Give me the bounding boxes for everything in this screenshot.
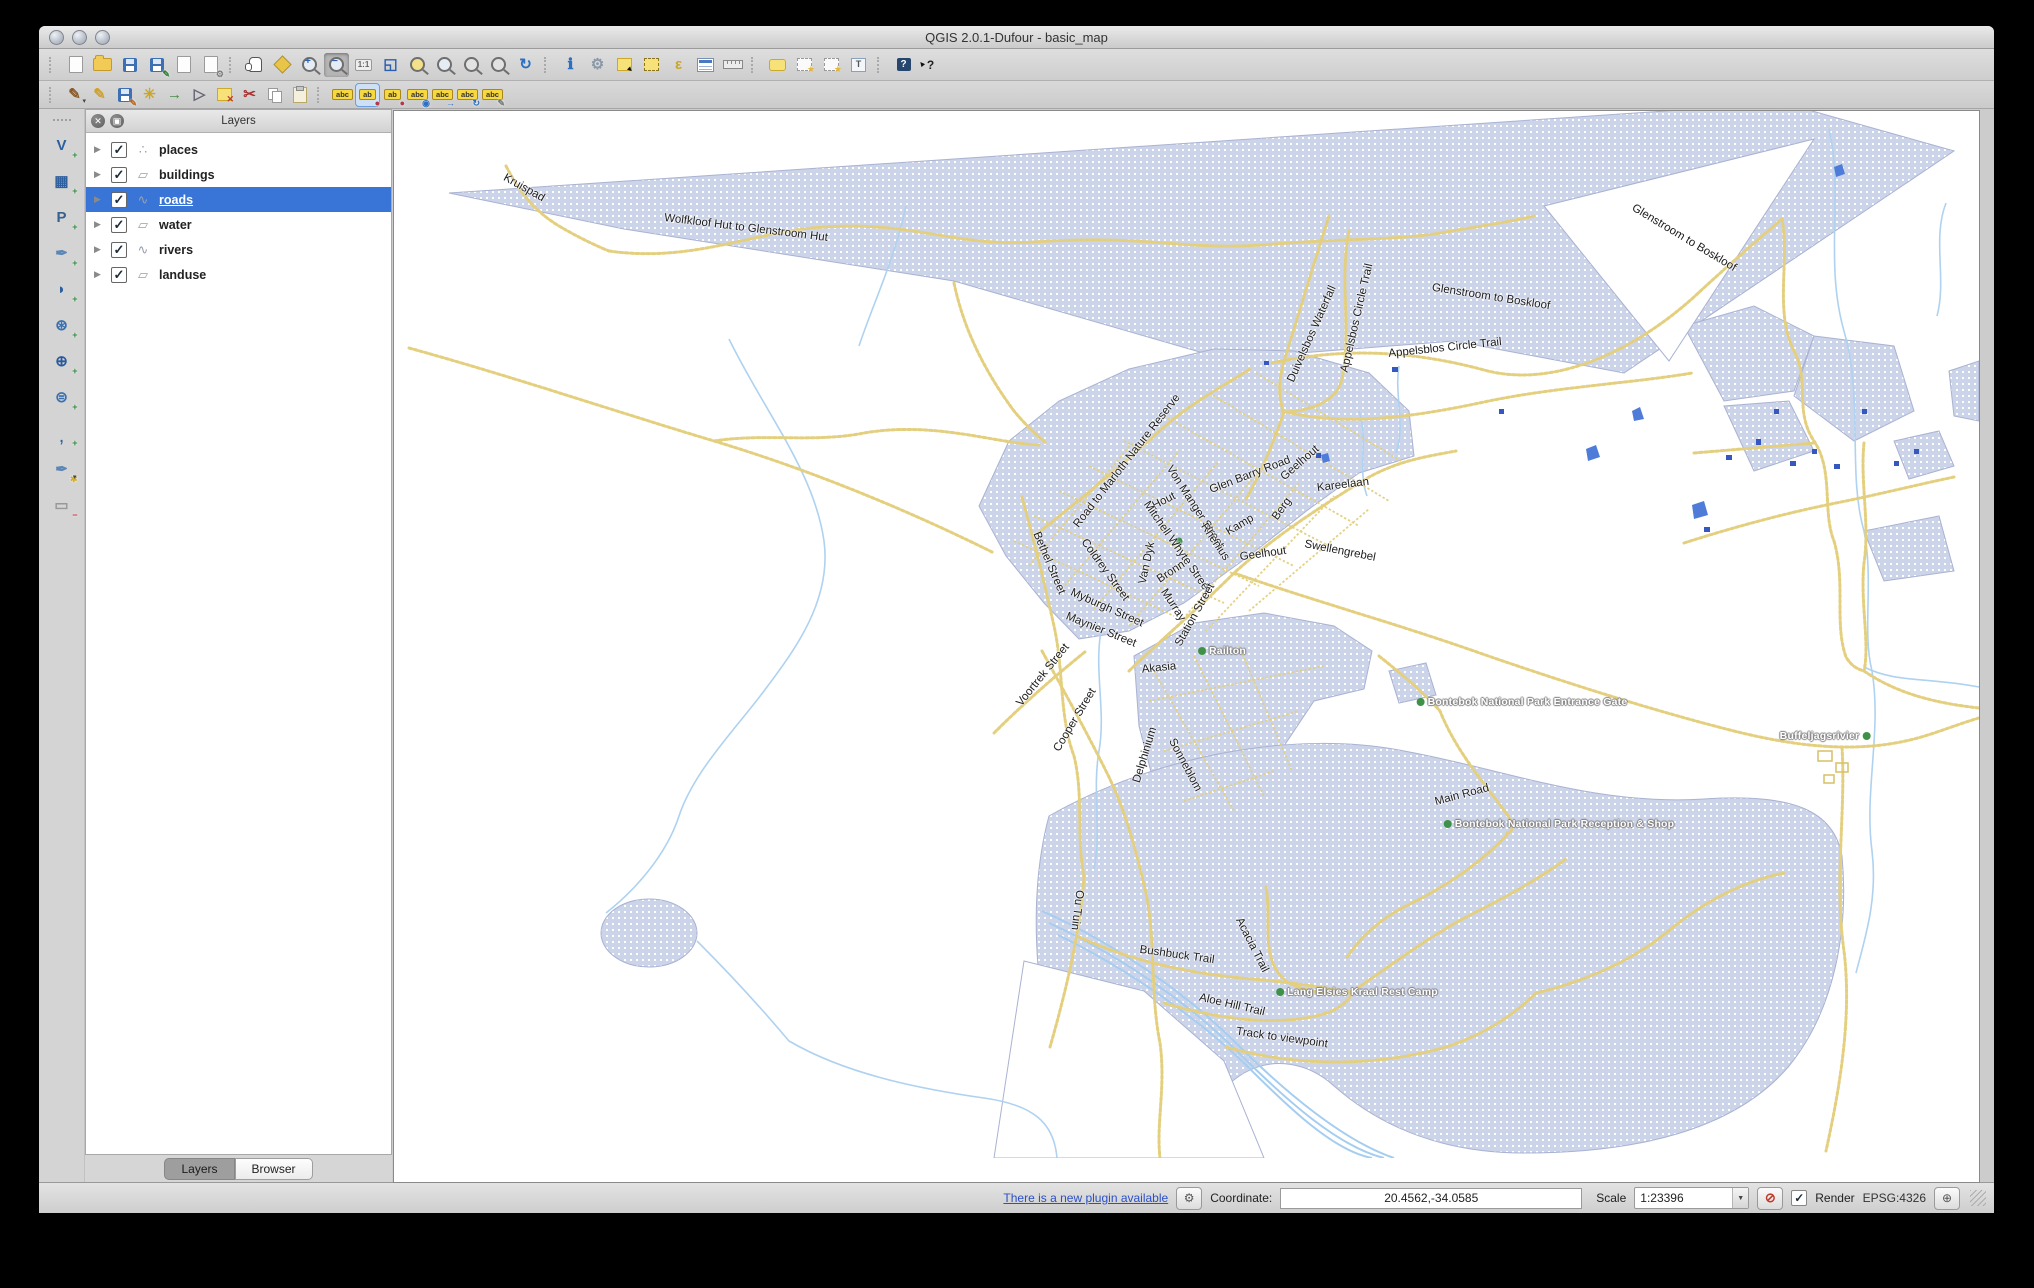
badge-icon: ↻ (472, 99, 480, 108)
tab-browser[interactable]: Browser (235, 1158, 313, 1180)
polygon-geometry-icon: ▱ (134, 217, 152, 233)
toolbar-separator (229, 57, 237, 73)
badge-icon: ✎ (162, 70, 170, 79)
manage-layers-buttons: V+▦+P+✒+◗+⊛+⊕+⊜+,+✒✱▾▭− (47, 132, 77, 518)
map-canvas[interactable]: KruispadWolfkloof Hut to Glenstroom HutG… (393, 110, 1980, 1183)
plugin-icon[interactable]: ⚙ (1176, 1187, 1202, 1210)
digitizing-labeling-toolbar: ✎▾✎✎✳→▷✂abcab●ab●abc◉abc→abc↻abc✎ (39, 81, 1994, 109)
save-layer-edits-icon[interactable]: ✎ (113, 84, 136, 106)
badge-icon: ● (400, 99, 405, 108)
badge-icon: ✎ (497, 99, 505, 108)
expander-icon[interactable]: ▶ (94, 219, 104, 230)
toolbar-drag-handle[interactable] (53, 119, 71, 126)
main-area: V+▦+P+✒+◗+⊛+⊕+⊜+,+✒✱▾▭− ✕ ▣ Layers ▶✓∴pl… (39, 109, 1994, 1182)
line-geometry-icon: ∿ (134, 242, 152, 258)
map-tips-icon[interactable] (765, 53, 790, 77)
layers-panel-title: Layers (86, 115, 391, 127)
move-feature-icon[interactable]: → (163, 84, 186, 106)
panel-close-icon[interactable]: ✕ (91, 114, 105, 128)
place-label-text: Bontebok National Park Reception & Shop (1455, 818, 1675, 830)
highlight-pinned-labels-icon[interactable]: ab● (381, 84, 404, 106)
place-dot (1862, 732, 1870, 740)
delete-selected-icon[interactable] (213, 84, 236, 106)
copy-features-icon[interactable] (263, 84, 286, 106)
place-label-text: Bontebok National Park Entrance Gate (1428, 696, 1628, 708)
open-project-icon[interactable] (90, 53, 115, 77)
map-place-label: Bontebok National Park Reception & Shop (1444, 818, 1675, 830)
place-dot (1444, 820, 1452, 828)
add-delimited-text-layer-icon[interactable]: ,+ (47, 420, 77, 446)
add-postgis-layer-icon[interactable]: P+ (47, 204, 77, 230)
select-features-rectangle-icon[interactable] (612, 53, 637, 77)
layer-list: ▶✓∴places▶✓▱buildings▶✓∿roads▶✓▱water▶✓∿… (86, 133, 391, 1154)
remove-layer-icon[interactable]: ▭− (47, 492, 77, 518)
node-tool-icon[interactable]: ▷ (188, 84, 211, 106)
badge-icon: ◉ (422, 99, 430, 108)
cut-features-icon[interactable]: ✂ (238, 84, 261, 106)
dropdown-caret-icon[interactable]: ▾ (82, 97, 86, 105)
save-project-as-icon[interactable]: ✎ (144, 53, 169, 77)
layer-visibility-checkbox[interactable]: ✓ (111, 167, 127, 183)
change-label-properties-icon[interactable]: abc✎ (481, 84, 504, 106)
minimize-window-button[interactable] (72, 30, 87, 45)
polygon-geometry-icon: ▱ (134, 167, 152, 183)
zoom-last-icon[interactable] (459, 53, 484, 77)
current-edits-icon[interactable]: ✎▾ (63, 84, 86, 106)
layer-name: water (159, 218, 192, 232)
badge-icon: ⚙ (216, 70, 224, 79)
add-raster-layer-icon[interactable]: ▦+ (47, 168, 77, 194)
place-dot (1276, 988, 1284, 996)
panel-tabs: Layers Browser (85, 1155, 392, 1182)
layers-panel-column: ✕ ▣ Layers ▶✓∴places▶✓▱buildings▶✓∿roads… (84, 109, 392, 1182)
map-place-label: Bontebok National Park Entrance Gate (1417, 696, 1628, 708)
scale-value: 1:23396 (1640, 1191, 1683, 1205)
badge-icon: + (72, 439, 77, 448)
expander-icon[interactable]: ▶ (94, 194, 104, 205)
deselect-features-icon[interactable] (639, 53, 664, 77)
expander-icon[interactable]: ▶ (94, 269, 104, 280)
place-label-text: Railton (1209, 645, 1246, 657)
render-checkbox[interactable]: ✓ (1791, 1190, 1807, 1206)
open-attribute-table-icon[interactable] (693, 53, 718, 77)
add-mssql-layer-icon[interactable]: ◗+ (47, 276, 77, 302)
main-toolbar: ✎⚙1:1◱↻ℹ⚙εT?? (39, 49, 1994, 81)
zoom-window-button[interactable] (95, 30, 110, 45)
layer-name: landuse (159, 268, 206, 282)
badge-icon: + (72, 259, 77, 268)
panel-float-icon[interactable]: ▣ (110, 114, 124, 128)
tab-layers[interactable]: Layers (164, 1158, 234, 1180)
add-feature-icon[interactable]: ✳ (138, 84, 161, 106)
paste-features-icon[interactable] (288, 84, 311, 106)
point-geometry-icon: ∴ (134, 142, 152, 158)
crs-status: EPSG:4326 (1863, 1191, 1926, 1205)
scale-label: Scale (1596, 1191, 1626, 1205)
map-frame: KruispadWolfkloof Hut to Glenstroom HutG… (392, 109, 1994, 1182)
map-place-label: Buffeljagsrivier (1780, 730, 1871, 742)
layer-row-water[interactable]: ▶✓▱water (86, 212, 391, 237)
layer-visibility-checkbox[interactable]: ✓ (111, 267, 127, 283)
identify-features-icon[interactable]: ℹ (558, 53, 583, 77)
new-bookmark-icon[interactable] (792, 53, 817, 77)
pan-map-icon[interactable] (243, 53, 268, 77)
new-shapefile-layer-icon[interactable]: ✒✱▾ (47, 456, 77, 482)
polygon-geometry-icon: ▱ (134, 267, 152, 283)
pin-unpin-labels-icon[interactable]: ab● (356, 84, 379, 106)
pan-map-to-selection-icon[interactable] (270, 53, 295, 77)
badge-icon: + (72, 295, 77, 304)
stop-render-icon[interactable]: ⊘ (1757, 1187, 1783, 1210)
badge-icon: ● (375, 99, 380, 108)
composer-manager-icon[interactable]: ⚙ (198, 53, 223, 77)
manage-layers-toolbar: V+▦+P+✒+◗+⊛+⊕+⊜+,+✒✱▾▭− (39, 109, 84, 1182)
badge-icon: − (72, 511, 77, 520)
layer-visibility-checkbox[interactable]: ✓ (111, 192, 127, 208)
line-geometry-icon: ∿ (134, 192, 152, 208)
layers-panel: ✕ ▣ Layers ▶✓∴places▶✓▱buildings▶✓∿roads… (85, 109, 392, 1155)
coordinate-label: Coordinate: (1210, 1191, 1272, 1205)
toolbar-separator (49, 57, 57, 73)
toolbar-separator (544, 57, 552, 73)
add-wms-layer-icon[interactable]: ⊛+ (47, 312, 77, 338)
show-hide-labels-icon[interactable]: abc◉ (406, 84, 429, 106)
add-wfs-layer-icon[interactable]: ⊜+ (47, 384, 77, 410)
map-place-label: Railton (1198, 645, 1246, 657)
badge-icon: ✎ (129, 99, 137, 108)
layer-row-places[interactable]: ▶✓∴places (86, 137, 391, 162)
labeling-icon[interactable]: abc (331, 84, 354, 106)
layer-visibility-checkbox[interactable]: ✓ (111, 217, 127, 233)
help-contents-icon[interactable]: ? (891, 53, 916, 77)
layer-visibility-checkbox[interactable]: ✓ (111, 242, 127, 258)
toolbar-separator (877, 57, 885, 73)
badge-icon: + (72, 223, 77, 232)
place-dot (1198, 647, 1206, 655)
text-annotation-icon[interactable]: T (846, 53, 871, 77)
expander-icon[interactable]: ▶ (94, 144, 104, 155)
badge-icon: + (72, 151, 77, 160)
scale-combo[interactable]: 1:23396 ▼ (1634, 1187, 1749, 1209)
zoom-full-icon[interactable]: ◱ (378, 53, 403, 77)
resize-grip[interactable] (1970, 1190, 1986, 1206)
layer-name: buildings (159, 168, 215, 182)
coordinate-input[interactable]: 20.4562,-34.0585 (1280, 1188, 1582, 1209)
layer-row-buildings[interactable]: ▶✓▱buildings (86, 162, 391, 187)
place-label-text: Lang Elsies Kraal Rest Camp (1287, 986, 1438, 998)
zoom-to-selection-icon[interactable] (405, 53, 430, 77)
refresh-icon[interactable]: ↻ (513, 53, 538, 77)
zoom-in-icon[interactable] (297, 53, 322, 77)
badge-icon: + (72, 403, 77, 412)
save-project-icon[interactable] (117, 53, 142, 77)
layer-name: rivers (159, 243, 193, 257)
expander-icon[interactable]: ▶ (94, 169, 104, 180)
zoom-next-icon[interactable] (486, 53, 511, 77)
badge-icon: + (72, 187, 77, 196)
layer-name: places (159, 143, 198, 157)
measure-line-icon[interactable] (720, 53, 745, 77)
place-dot (1417, 698, 1425, 706)
layer-visibility-checkbox[interactable]: ✓ (111, 142, 127, 158)
toolbar-separator (751, 57, 759, 73)
run-feature-action-icon[interactable]: ⚙ (585, 53, 610, 77)
layers-panel-header: ✕ ▣ Layers (86, 110, 391, 133)
new-project-icon[interactable] (63, 53, 88, 77)
show-bookmarks-icon[interactable] (819, 53, 844, 77)
whats-this-icon[interactable]: ? (918, 53, 943, 77)
layer-name: roads (159, 193, 193, 207)
dropdown-caret-icon[interactable]: ▾ (73, 473, 77, 481)
badge-icon: → (446, 99, 455, 108)
zoom-out-icon[interactable] (324, 53, 349, 77)
place-label-text: Buffeljagsrivier (1780, 730, 1860, 742)
toolbar-separator (49, 87, 57, 103)
toolbar-separator (317, 87, 325, 103)
add-wcs-layer-icon[interactable]: ⊕+ (47, 348, 77, 374)
window-title: QGIS 2.0.1-Dufour - basic_map (39, 30, 1994, 45)
layer-row-rivers[interactable]: ▶✓∿rivers (86, 237, 391, 262)
window-controls (49, 30, 110, 45)
chevron-down-icon[interactable]: ▼ (1732, 1188, 1748, 1208)
move-label-icon[interactable]: abc→ (431, 84, 454, 106)
title-bar[interactable]: QGIS 2.0.1-Dufour - basic_map (39, 26, 1994, 49)
expander-icon[interactable]: ▶ (94, 244, 104, 255)
badge-icon: + (72, 367, 77, 376)
qgis-window: QGIS 2.0.1-Dufour - basic_map ✎⚙1:1◱↻ℹ⚙ε… (39, 26, 1994, 1213)
render-label: Render (1815, 1191, 1854, 1205)
badge-icon: + (72, 331, 77, 340)
add-spatialite-layer-icon[interactable]: ✒+ (47, 240, 77, 266)
layer-row-landuse[interactable]: ▶✓▱landuse (86, 262, 391, 287)
new-print-composer-icon[interactable] (171, 53, 196, 77)
desktop: { "window": { "title": "QGIS 2.0.1-Dufou… (0, 0, 2034, 1288)
zoom-to-layer-icon[interactable] (432, 53, 457, 77)
map-place-label: Lang Elsies Kraal Rest Camp (1276, 986, 1438, 998)
crs-globe-icon[interactable]: ⊕ (1934, 1187, 1960, 1210)
select-by-expression-icon[interactable]: ε (666, 53, 691, 77)
rotate-label-icon[interactable]: abc↻ (456, 84, 479, 106)
close-window-button[interactable] (49, 30, 64, 45)
add-vector-layer-icon[interactable]: V+ (47, 132, 77, 158)
plugin-available-link[interactable]: There is a new plugin available (1003, 1191, 1168, 1205)
toggle-editing-icon[interactable]: ✎ (88, 84, 111, 106)
layer-row-roads[interactable]: ▶✓∿roads (86, 187, 391, 212)
status-bar: There is a new plugin available ⚙ Coordi… (39, 1182, 1994, 1213)
zoom-native-icon[interactable]: 1:1 (351, 53, 376, 77)
